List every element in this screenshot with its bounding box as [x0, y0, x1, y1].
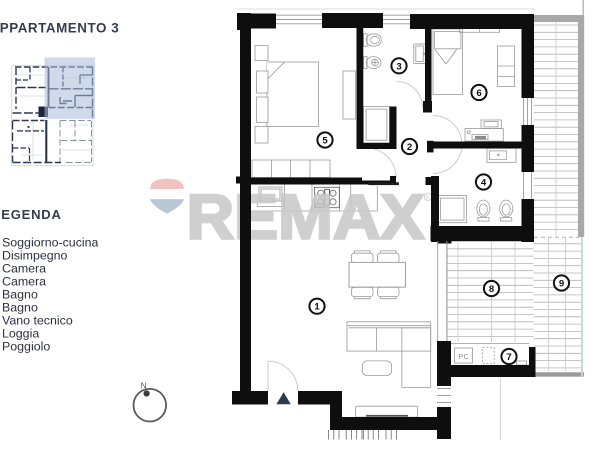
svg-text:4: 4	[481, 178, 487, 189]
svg-text:7: 7	[506, 352, 511, 363]
svg-text:9: 9	[559, 279, 564, 290]
svg-text:3: 3	[396, 61, 401, 72]
svg-text:Poggiolo: Poggiolo	[2, 340, 50, 354]
svg-text:R: R	[426, 195, 430, 201]
svg-text:Disimpegno: Disimpegno	[2, 249, 68, 263]
svg-text:5: 5	[322, 136, 328, 147]
svg-text:Bagno: Bagno	[2, 288, 38, 302]
svg-text:N: N	[141, 381, 147, 391]
svg-text:6: 6	[476, 88, 481, 99]
svg-text:REMAX: REMAX	[187, 183, 425, 253]
svg-text:2: 2	[407, 142, 412, 153]
svg-text:Soggiorno-cucina: Soggiorno-cucina	[2, 236, 99, 250]
svg-text:8: 8	[489, 284, 495, 295]
svg-text:Camera: Camera	[2, 275, 46, 289]
svg-text:1: 1	[314, 302, 320, 313]
svg-text:Vano tecnico: Vano tecnico	[2, 314, 73, 328]
svg-text:PC: PC	[459, 354, 470, 361]
svg-text:Camera: Camera	[2, 262, 46, 276]
svg-text:Loggia: Loggia	[2, 327, 39, 341]
svg-text:Bagno: Bagno	[2, 301, 38, 315]
svg-text:LEGENDA: LEGENDA	[0, 207, 62, 222]
svg-text:APPARTAMENTO 3: APPARTAMENTO 3	[0, 21, 119, 36]
